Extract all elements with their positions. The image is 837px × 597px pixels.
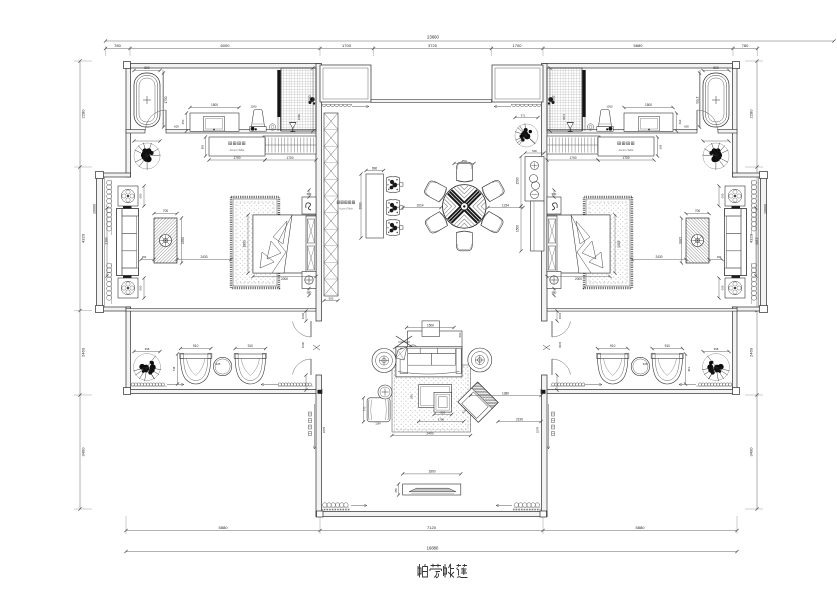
svg-text:600: 600 — [684, 125, 689, 129]
svg-text:1750: 1750 — [164, 96, 168, 103]
svg-text:600: 600 — [201, 144, 205, 149]
svg-text:6000: 6000 — [221, 43, 231, 48]
svg-text:1500: 1500 — [645, 103, 652, 107]
svg-text:990: 990 — [372, 166, 378, 170]
svg-text:1500: 1500 — [516, 177, 520, 184]
svg-text:500: 500 — [329, 296, 334, 300]
svg-text:910: 910 — [610, 344, 616, 348]
svg-text:700: 700 — [163, 209, 169, 213]
svg-text:1800: 1800 — [617, 240, 621, 247]
svg-text:2280: 2280 — [749, 109, 754, 119]
svg-text:3400: 3400 — [749, 447, 754, 457]
svg-text:780: 780 — [114, 43, 121, 48]
svg-text:1700: 1700 — [513, 43, 523, 48]
svg-text:770: 770 — [362, 406, 366, 411]
svg-text:325: 325 — [216, 362, 221, 366]
svg-text:368: 368 — [714, 347, 719, 351]
svg-text:1700: 1700 — [342, 43, 352, 48]
svg-text:500: 500 — [552, 192, 557, 196]
svg-text:738: 738 — [172, 366, 176, 371]
svg-text:600: 600 — [174, 125, 179, 129]
svg-text:325: 325 — [643, 362, 648, 366]
svg-text:7120: 7120 — [427, 525, 437, 530]
svg-text:2400: 2400 — [426, 431, 433, 435]
svg-text:2000: 2000 — [551, 95, 555, 102]
svg-text:500: 500 — [307, 192, 312, 196]
svg-text:2000: 2000 — [575, 277, 582, 281]
svg-text:2100: 2100 — [755, 237, 759, 244]
svg-text:350: 350 — [181, 119, 185, 124]
svg-text:910: 910 — [248, 344, 254, 348]
svg-text:600: 600 — [139, 193, 143, 198]
svg-text:1260: 1260 — [250, 105, 257, 109]
svg-text:1550: 1550 — [181, 237, 185, 244]
svg-text:600: 600 — [721, 286, 725, 291]
svg-text:2279: 2279 — [322, 426, 326, 433]
svg-text:2460: 2460 — [749, 347, 754, 357]
svg-text:500: 500 — [307, 291, 312, 295]
svg-text:1200: 1200 — [297, 113, 301, 120]
svg-text:600: 600 — [139, 285, 143, 290]
svg-text:500: 500 — [532, 149, 537, 153]
svg-text:5880: 5880 — [636, 525, 646, 530]
svg-text:1000: 1000 — [301, 341, 305, 348]
svg-text:1000: 1000 — [558, 342, 562, 349]
svg-text:2430: 2430 — [655, 255, 662, 259]
svg-text:700: 700 — [695, 209, 701, 213]
svg-text:350: 350 — [678, 120, 682, 125]
svg-text:600: 600 — [721, 194, 725, 199]
svg-text:3720: 3720 — [428, 43, 438, 48]
svg-text:1550: 1550 — [678, 237, 682, 244]
svg-text:500: 500 — [458, 332, 462, 337]
svg-text:1700: 1700 — [286, 156, 293, 160]
svg-text:780: 780 — [742, 43, 749, 48]
svg-text:1234: 1234 — [502, 203, 509, 207]
svg-text:910: 910 — [665, 344, 671, 348]
svg-text:2000: 2000 — [359, 202, 363, 209]
svg-text:600: 600 — [659, 145, 663, 150]
svg-text:1200: 1200 — [562, 114, 566, 121]
svg-text:5880: 5880 — [634, 43, 644, 48]
svg-text:1014: 1014 — [416, 203, 423, 207]
svg-text:1094: 1094 — [558, 313, 562, 320]
svg-text:2190: 2190 — [516, 417, 523, 421]
svg-text:2100: 2100 — [105, 237, 109, 244]
svg-text:350: 350 — [394, 488, 398, 493]
svg-text:1260: 1260 — [606, 105, 613, 109]
svg-text:1500: 1500 — [427, 323, 434, 327]
svg-text:368: 368 — [145, 347, 150, 351]
svg-text:3400: 3400 — [81, 447, 86, 457]
svg-text:23660: 23660 — [427, 35, 439, 40]
svg-text:371: 371 — [521, 113, 526, 117]
svg-text:1380: 1380 — [502, 391, 509, 395]
svg-text:520: 520 — [440, 410, 445, 414]
svg-text:2460: 2460 — [81, 347, 86, 357]
svg-text:2000: 2000 — [281, 277, 288, 281]
svg-text:450: 450 — [461, 159, 467, 163]
svg-text:1800: 1800 — [243, 240, 247, 247]
svg-text:2000: 2000 — [308, 95, 312, 102]
svg-text:16880: 16880 — [427, 546, 439, 551]
svg-text:5880: 5880 — [219, 525, 229, 530]
svg-text:Accent Table: Accent Table — [619, 148, 634, 152]
svg-text:10660: 10660 — [764, 204, 768, 214]
svg-text:1094: 1094 — [301, 312, 305, 319]
svg-text:2279: 2279 — [536, 426, 540, 433]
svg-text:2430: 2430 — [200, 255, 207, 259]
svg-text:2280: 2280 — [81, 109, 86, 119]
svg-text:1700: 1700 — [233, 156, 240, 160]
svg-text:4320: 4320 — [749, 233, 754, 243]
svg-text:1750: 1750 — [695, 96, 699, 103]
svg-text:1800: 1800 — [428, 470, 435, 474]
svg-text:4320: 4320 — [81, 233, 86, 243]
svg-text:1194: 1194 — [375, 423, 381, 426]
svg-text:10660: 10660 — [93, 204, 97, 214]
svg-text:Accent Table: Accent Table — [339, 208, 353, 211]
svg-text:738: 738 — [687, 367, 691, 372]
svg-text:1500: 1500 — [211, 103, 218, 107]
svg-text:800: 800 — [144, 66, 150, 70]
svg-text:1500: 1500 — [516, 225, 520, 232]
svg-text:1700: 1700 — [569, 156, 576, 160]
svg-text:Accent Table: Accent Table — [230, 148, 245, 152]
svg-text:500: 500 — [552, 291, 557, 295]
svg-text:1780: 1780 — [438, 417, 445, 421]
svg-text:910: 910 — [193, 344, 199, 348]
svg-text:1700: 1700 — [622, 156, 629, 160]
svg-text:390: 390 — [717, 255, 722, 259]
svg-text:800: 800 — [713, 66, 719, 70]
svg-text:390: 390 — [142, 255, 147, 259]
svg-text:930: 930 — [410, 394, 414, 399]
